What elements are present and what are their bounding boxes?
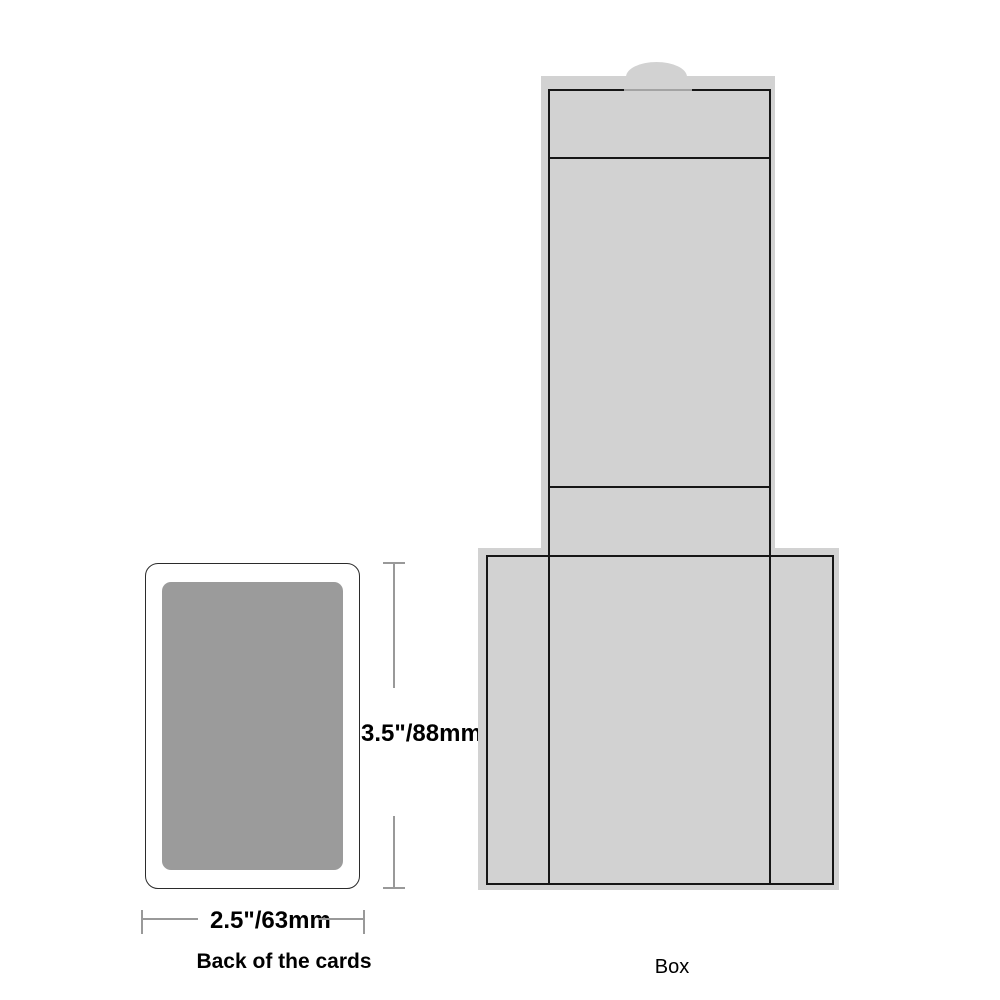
width-dimension-left-tick xyxy=(141,910,143,934)
box-caption: Box xyxy=(597,957,747,977)
box-fold-line-front-bottom xyxy=(548,486,771,488)
card-height-label: 3.5"/88mm xyxy=(361,722,482,746)
card-back-fill xyxy=(162,582,343,870)
card-caption: Back of the cards xyxy=(159,951,409,972)
box-cut-line-column-right xyxy=(769,89,771,885)
box-silhouette-base xyxy=(478,548,839,890)
box-cut-line-base-left xyxy=(486,555,488,885)
box-silhouette-column xyxy=(541,76,775,556)
width-dimension-line-left xyxy=(141,918,198,920)
card-width-label: 2.5"/63mm xyxy=(210,909,331,933)
card-and-box-dieline-diagram: 3.5"/88mm 2.5"/63mm Back of the cards Bo… xyxy=(0,0,1000,1000)
height-dimension-line-lower xyxy=(393,816,395,888)
box-thumb-notch-line xyxy=(624,89,692,91)
box-cut-line-top-left xyxy=(548,89,624,91)
box-fold-line-lid-flap xyxy=(548,157,771,159)
width-dimension-line-right xyxy=(318,918,364,920)
box-fold-line-base-top xyxy=(486,555,834,557)
box-cut-line-column-left xyxy=(548,89,550,885)
box-cut-line-base-right xyxy=(832,555,834,885)
box-cut-line-top-right xyxy=(692,89,771,91)
width-dimension-right-tick xyxy=(363,910,365,934)
box-cut-line-bottom xyxy=(486,883,834,885)
height-dimension-bottom-tick xyxy=(383,887,405,889)
box-thumb-tab xyxy=(626,62,687,77)
height-dimension-line-upper xyxy=(393,562,395,688)
